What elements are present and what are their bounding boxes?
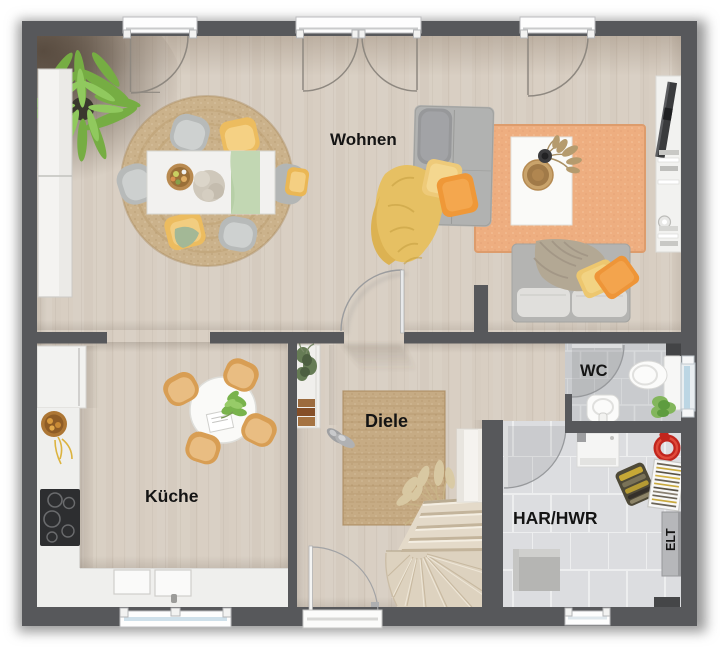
svg-text:ELT: ELT bbox=[664, 528, 678, 551]
svg-text:Diele: Diele bbox=[365, 411, 408, 431]
svg-text:WC: WC bbox=[580, 362, 608, 380]
svg-text:Wohnen: Wohnen bbox=[330, 130, 397, 149]
svg-text:HAR/HWR: HAR/HWR bbox=[513, 508, 598, 528]
svg-text:Küche: Küche bbox=[145, 486, 199, 506]
